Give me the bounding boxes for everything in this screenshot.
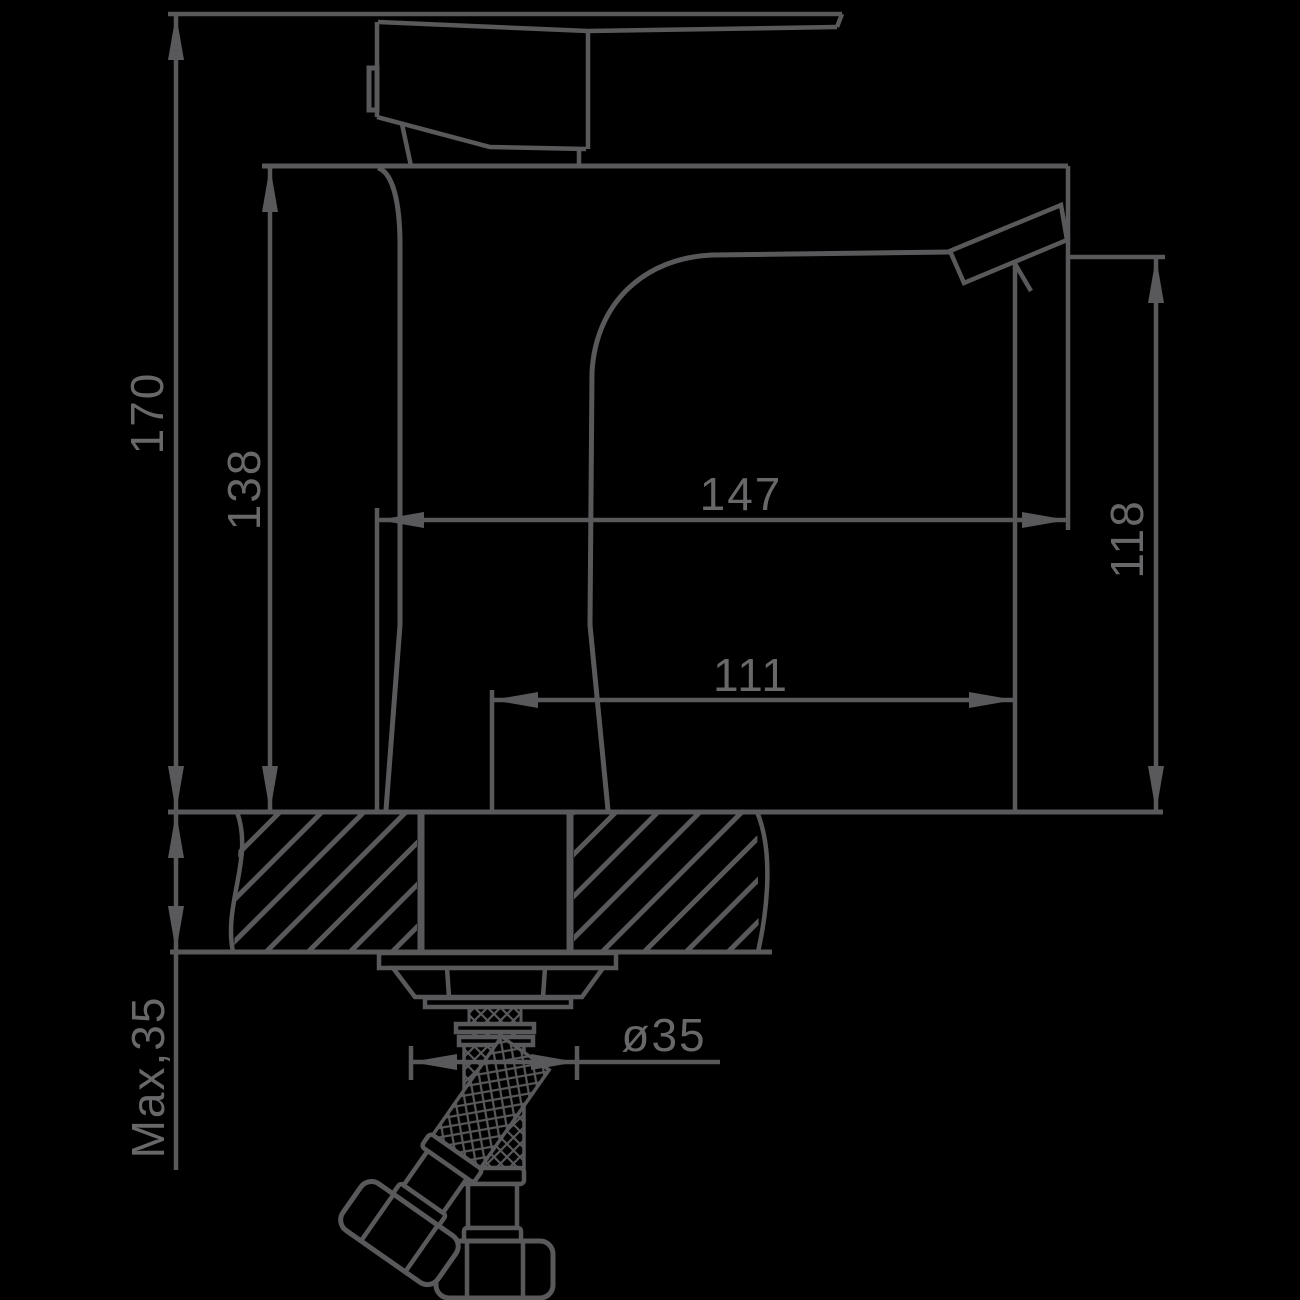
arrowhead-down-icon xyxy=(1148,766,1164,812)
arrowhead-right-icon xyxy=(1022,512,1068,528)
drawing-canvas: 170 138 Max,35 147 111 118 xyxy=(0,0,1300,1300)
arrowhead-up-icon xyxy=(262,166,278,212)
arrowhead-left-icon xyxy=(411,1054,457,1070)
dim-label-138: 138 xyxy=(218,448,270,531)
mounting-hardware xyxy=(379,953,616,1045)
counter-hatch-left xyxy=(234,814,417,950)
arrowhead-down-icon xyxy=(262,766,278,812)
faucet-technical-drawing: 170 138 Max,35 147 111 118 xyxy=(0,0,1300,1300)
arrowhead-left-icon xyxy=(492,692,538,708)
faucet-outline xyxy=(168,14,1068,810)
arrowhead-down-icon xyxy=(168,906,184,952)
aerator-tip xyxy=(950,205,1067,283)
mounting-nut xyxy=(393,968,603,997)
shank-plate-upper xyxy=(456,1024,534,1032)
arrowhead-up-icon xyxy=(168,14,184,60)
dim-label-147: 147 xyxy=(700,468,783,520)
arrowhead-up-icon xyxy=(1148,257,1164,303)
arrowhead-right-icon xyxy=(969,692,1015,708)
arrowhead-right-icon xyxy=(531,1054,577,1070)
dimension-spout-height-118: 118 xyxy=(1068,257,1165,812)
mounting-nut-facet-left xyxy=(447,968,449,997)
dim-label-118: 118 xyxy=(1101,499,1153,578)
counter-hatch-right xyxy=(574,814,759,950)
handle-lower-edge xyxy=(378,22,837,31)
dim-label-170: 170 xyxy=(121,372,173,455)
handle-cap-notch xyxy=(369,68,377,110)
dim-label-max35: Max,35 xyxy=(122,996,174,1159)
dim-label-111: 111 xyxy=(713,649,789,701)
mounting-nut-facet-right xyxy=(543,968,545,997)
arrowhead-down-icon xyxy=(168,766,184,812)
dimension-max-deck-thickness: Max,35 xyxy=(122,812,184,1170)
countertop-section xyxy=(168,812,1163,952)
neck-left-line xyxy=(402,124,411,166)
dimension-body-height-138: 138 xyxy=(218,166,278,812)
hose-pipe xyxy=(468,1184,517,1228)
body-left-profile xyxy=(378,168,400,810)
spout-underside-profile xyxy=(590,252,950,810)
arrowhead-up-icon xyxy=(168,812,184,858)
dimension-spout-reach-111: 111 xyxy=(492,260,1015,812)
dim-label-o35: ø35 xyxy=(621,1009,706,1061)
dimension-total-height-170: 170 xyxy=(121,14,184,812)
